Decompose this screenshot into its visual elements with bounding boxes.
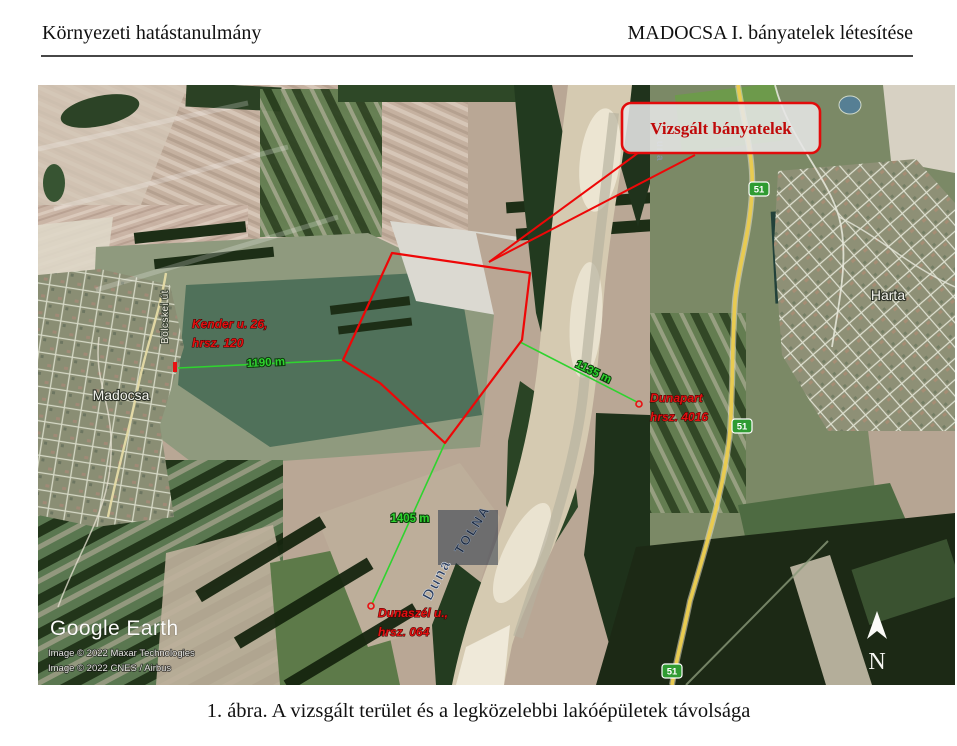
property-label: Dunaszél u., [378,606,448,620]
north-label: N [868,649,885,675]
header-left: Környezeti hatástanulmány [42,22,261,45]
map-place-label: Madocsa [93,387,150,403]
document-page: Környezeti hatástanulmány MADOCSA I. bán… [0,0,957,746]
map-place-label: Harta [871,287,905,303]
map-place-label: Bölcskei út [160,290,171,344]
callout-label: Vizsgált bányatelek [650,119,792,138]
property-label: Dunapart [650,391,704,405]
property-label: hrsz. 4016 [650,410,708,424]
satellite-map-figure: MadocsaHartaBölcskei útDunaDunaTOLNA1190… [38,85,955,685]
distance-marker-icon [173,362,177,372]
property-label: hrsz. 064 [378,625,430,639]
distance-label: 1405 m [390,513,429,525]
road-shield-label: 51 [754,185,765,196]
property-label: Kender u. 26, [192,317,267,331]
google-earth-logo: Google Earth [50,617,179,640]
header-rule [41,55,913,57]
satellite-map: MadocsaHartaBölcskei útDunaDunaTOLNA1190… [38,85,955,685]
road-shield-label: 51 [667,667,678,678]
credit-line-1: Image © 2022 Maxar Technologies [48,648,195,659]
page-header: Környezeti hatástanulmány MADOCSA I. bán… [42,22,913,45]
property-label: hrsz. 120 [192,336,244,350]
distance-label: 1190 m [246,356,285,370]
figure-caption: 1. ábra. A vizsgált terület és a legköze… [0,700,957,723]
satellite-imagery [38,85,955,685]
credit-line-2: Image © 2022 CNES / Airbus [48,663,171,674]
header-right: MADOCSA I. bányatelek létesítése [628,22,914,45]
road-shield-label: 51 [737,422,748,433]
